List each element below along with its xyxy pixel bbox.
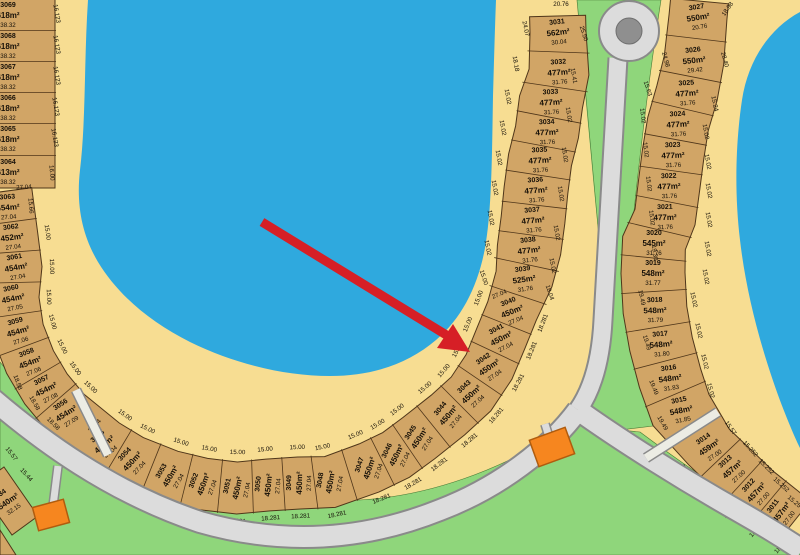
lot-number-3064: 3064 [0,159,16,166]
lot-number-3034: 3034 [539,119,555,127]
lot-depth-3069: 38.32 [0,22,16,29]
lot-block-left-column: 3069618m²38.323068618m²38.323067618m²38.… [0,0,56,188]
lot-depth-3049: 27.04 [306,475,313,491]
dim-label: 20.76 [553,1,569,8]
lot-number-3035: 3035 [532,147,548,155]
lot-number-3018: 3018 [647,297,663,305]
lot-number-3068: 3068 [0,33,16,40]
lot-number-3032: 3032 [550,58,566,66]
lot-number-3024: 3024 [670,111,686,119]
plat-map-screenshot: 3069618m²38.323068618m²38.323067618m²38.… [0,0,800,555]
dim-label: 27.04 [16,184,32,192]
lot-number-3066: 3066 [0,95,16,102]
lot-depth-3065: 38.32 [0,146,16,153]
lot-depth-3034: 31.76 [540,139,556,147]
lot-depth-3032: 31.76 [552,78,568,86]
dim-label: 15.00 [45,289,52,305]
lot-number-3049: 3049 [286,475,293,491]
subdivision-plat-map: 3069618m²38.323068618m²38.323067618m²38.… [0,0,800,555]
lot-area-3018: 548m² [643,306,667,316]
roundabout-center-island [616,18,642,44]
lot-area-3035: 477m² [528,155,552,165]
lot-depth-3068: 38.32 [0,53,16,60]
lot-depth-3066: 38.32 [0,115,16,122]
dim-label: 16.00 [47,165,55,182]
lot-number-3069: 3069 [0,2,16,9]
lot-area-3068: 618m² [0,42,20,51]
lot-area-3049: 450m² [295,471,304,495]
lot-depth-3024: 31.76 [671,131,687,139]
lot-area-3065: 618m² [0,135,20,144]
lot-number-3025: 3025 [678,79,694,87]
lot-depth-3019: 31.77 [645,280,661,287]
lot-number-3033: 3033 [543,89,559,97]
lot-area-3034: 477m² [535,128,559,138]
dim-label: 15.00 [289,444,305,452]
lot-number-3019: 3019 [645,260,661,267]
lot-depth-3022: 31.76 [662,193,678,201]
lot-number-3021: 3021 [657,204,673,211]
lot-area-3066: 618m² [0,104,20,113]
lot-area-3023: 477m² [661,151,685,161]
lot-number-3037: 3037 [524,206,540,214]
lot-number-3036: 3036 [527,176,543,184]
lot-depth-3036: 31.76 [529,196,545,204]
lot-area-3064: 613m² [0,168,20,177]
lot-depth-3035: 31.76 [533,167,549,175]
dim-label: 18.281 [291,512,311,520]
lot-area-3033: 477m² [539,97,563,107]
dim-label: 15.00 [48,259,55,275]
lot-number-3017: 3017 [652,330,668,338]
driveway-2 [53,466,58,506]
lot-number-3023: 3023 [665,142,681,150]
lot-depth-3023: 31.76 [666,162,682,170]
lot-depth-3033: 31.76 [544,109,560,117]
lot-area-3069: 618m² [0,11,20,20]
lot-area-3063: 454m² [0,202,20,213]
lot-area-3025: 477m² [675,88,699,99]
lot-depth-3037: 31.76 [526,226,543,234]
lot-number-3020: 3020 [646,230,662,237]
lot-area-3019: 548m² [641,269,664,278]
dim-label: 15.66 [26,198,34,215]
dim-label: 15.00 [257,445,274,453]
lot-depth-3025: 31.76 [680,99,696,107]
lot-depth-3064: 38.32 [0,179,16,186]
lot-area-3021: 477m² [653,213,677,222]
lot-number-3067: 3067 [0,64,16,71]
lot-area-3024: 477m² [666,119,690,129]
lot-area-3022: 477m² [657,182,681,192]
lot-area-3067: 618m² [0,73,20,82]
lot-depth-3067: 38.32 [0,84,16,91]
lot-area-3036: 477m² [524,185,548,196]
lot-depth-3018: 31.79 [648,317,664,325]
dim-label: 15.00 [230,449,246,456]
lot-number-3065: 3065 [0,126,16,133]
lot-depth-3063: 27.04 [1,213,17,221]
lot-area-3032: 477m² [547,67,571,78]
lot-number-3022: 3022 [661,173,677,181]
lot-depth-3017: 31.80 [654,350,671,358]
lot-number-3063: 3063 [0,193,15,201]
